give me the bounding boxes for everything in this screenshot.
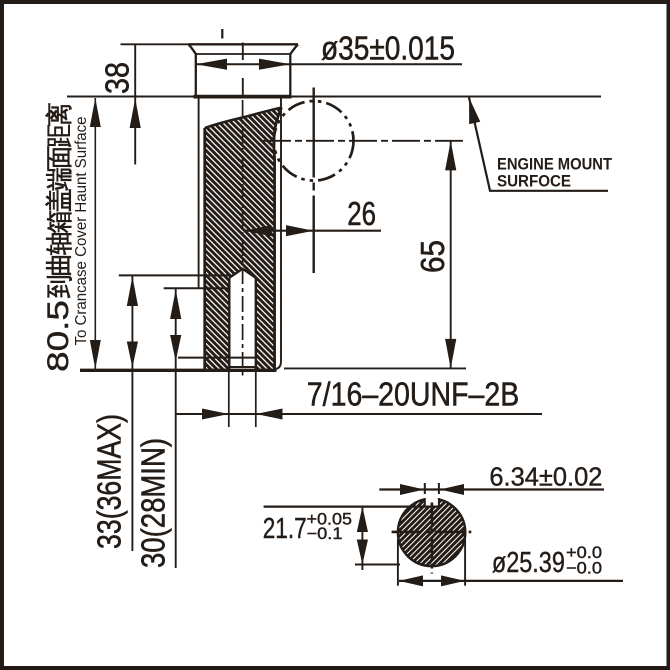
svg-text:ENGINE MOUNT: ENGINE MOUNT [497,156,612,174]
svg-text:−0.0: −0.0 [566,559,602,577]
svg-text:65: 65 [414,240,451,273]
svg-text:ø25.39: ø25.39 [492,547,565,579]
svg-text:80.5: 80.5 [42,300,75,372]
svg-text:ø35±0.015: ø35±0.015 [321,30,455,67]
svg-text:SURFOCE: SURFOCE [497,173,571,191]
svg-text:−0.1: −0.1 [307,525,343,543]
svg-text:26: 26 [347,195,376,232]
svg-text:6.34±0.02: 6.34±0.02 [489,461,602,491]
svg-text:33(36MAX): 33(36MAX) [91,414,128,549]
svg-text:To Crancase Cover Haunt Surfac: To Crancase Cover Haunt Surface [73,116,90,345]
svg-text:7/16–20UNF–2B: 7/16–20UNF–2B [307,376,520,413]
svg-text:21.7: 21.7 [263,513,307,545]
svg-text:38: 38 [99,62,136,94]
svg-text:30(28MIN): 30(28MIN) [135,438,172,568]
